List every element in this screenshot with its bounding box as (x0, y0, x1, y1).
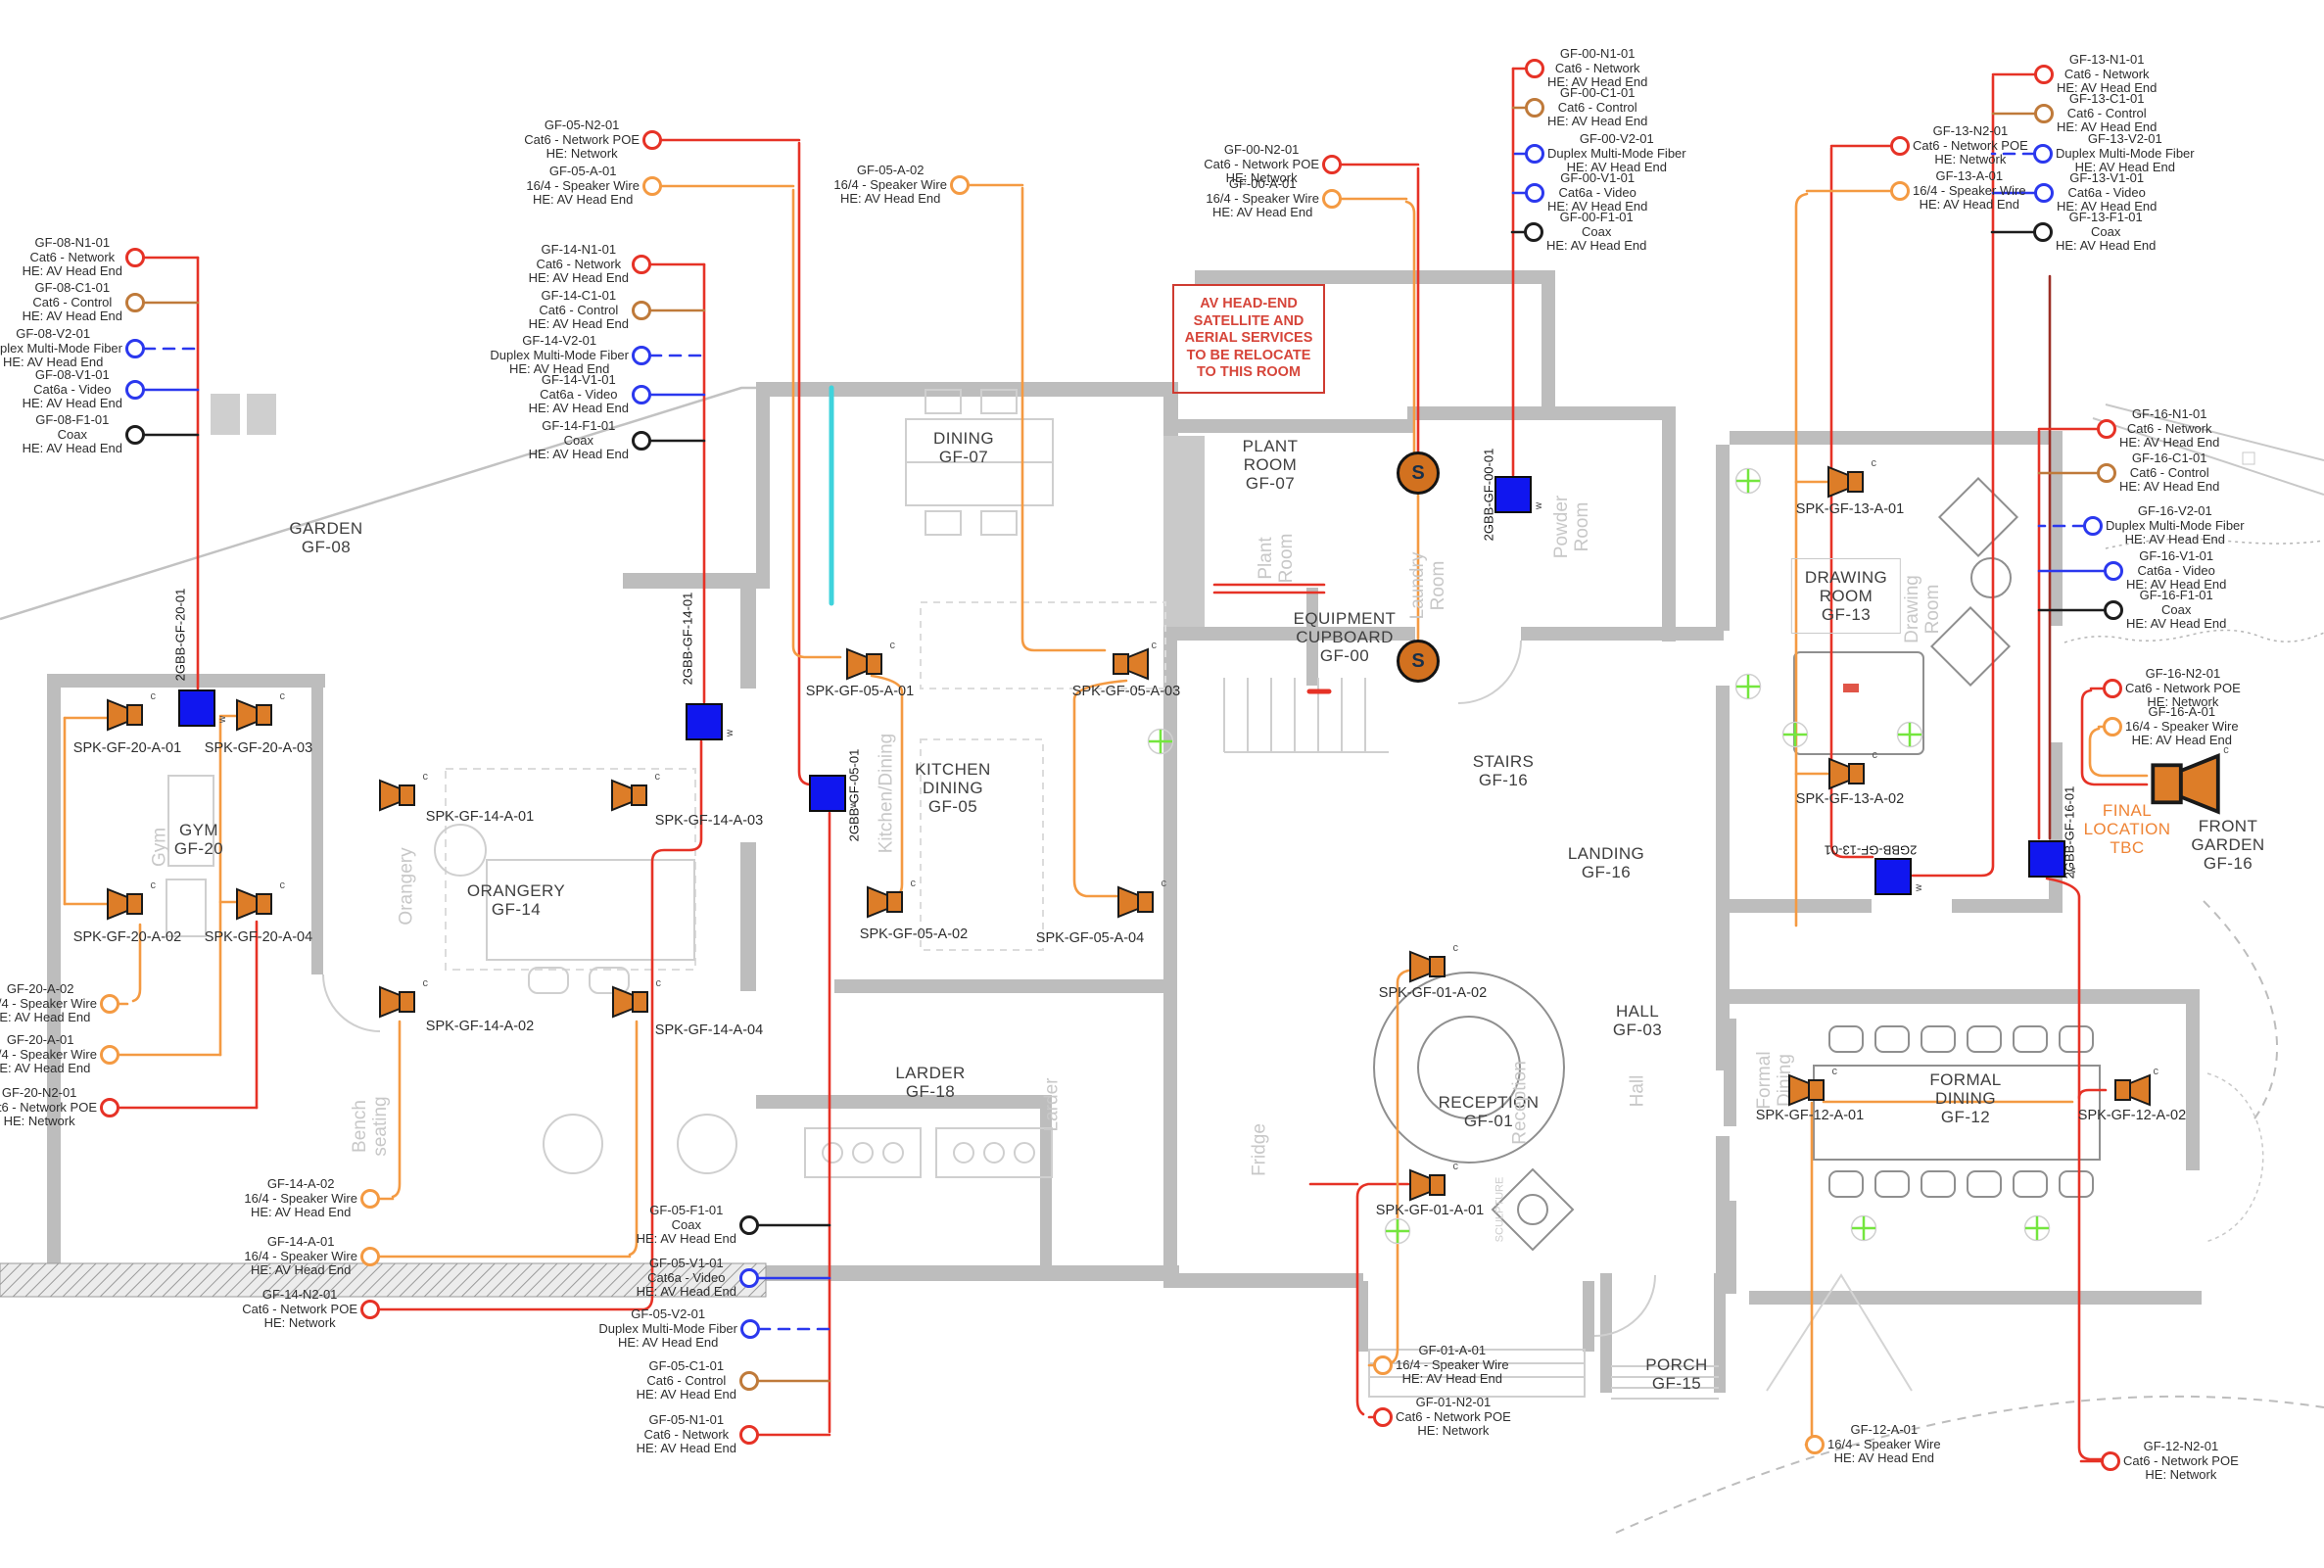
speaker-label: SPK-GF-20-A-01 (73, 740, 181, 756)
speaker-icon: c (378, 779, 421, 812)
room-label: PORCH GF-15 (1645, 1355, 1707, 1393)
speaker-label: SPK-GF-14-A-01 (426, 809, 534, 825)
callout-GF-14-V2-01: GF-14-V2-01 Duplex Multi-Mode Fiber HE: … (490, 334, 629, 377)
callout-GF-16-C1-01: GF-16-C1-01 Cat6 - Control HE: AV Head E… (2119, 451, 2219, 495)
speaker-label: SPK-GF-20-A-02 (73, 929, 181, 945)
speaker-label: SPK-GF-01-A-02 (1379, 985, 1487, 1001)
speaker-label: SPK-GF-14-A-03 (655, 813, 763, 829)
callout-GF-20-A-02: GF-20-A-02 16/4 - Speaker Wire HE: AV He… (0, 982, 97, 1025)
callout-GF-12-A-01: GF-12-A-01 16/4 - Speaker Wire HE: AV He… (1827, 1423, 1941, 1466)
callout-GF-16-N2-01: GF-16-N2-01 Cat6 - Network POE HE: Netwo… (2125, 667, 2241, 710)
callout-GF-00-N1-01: GF-00-N1-01 Cat6 - Network HE: AV Head E… (1547, 47, 1647, 90)
callout-GF-05-F1-01: GF-05-F1-01 Coax HE: AV Head End (637, 1204, 736, 1247)
callout-GF-05-V1-01: GF-05-V1-01 Cat6a - Video HE: AV Head En… (637, 1257, 736, 1300)
ceiling-marker-icon (1780, 720, 1810, 754)
callout-GF-05-A-01: GF-05-A-01 16/4 - Speaker Wire HE: AV He… (526, 165, 640, 208)
speaker-icon: c (1408, 950, 1451, 983)
callout-GF-13-V2-01: GF-13-V2-01 Duplex Multi-Mode Fiber HE: … (2056, 132, 2195, 175)
speaker-label: SPK-GF-20-A-03 (205, 740, 312, 756)
room-label: LARDER GF-18 (895, 1064, 965, 1101)
network-point-icon: w (2028, 840, 2065, 878)
callout-GF-00-F1-01: GF-00-F1-01 Coax HE: AV Head End (1546, 211, 1646, 254)
speaker-icon: c (106, 698, 149, 732)
speaker-label: SPK-GF-14-A-02 (426, 1019, 534, 1034)
speaker-c-mark: c (655, 771, 661, 783)
ceiling-marker-icon (1733, 466, 1763, 500)
callout-GF-16-A-01: GF-16-A-01 16/4 - Speaker Wire HE: AV He… (2125, 705, 2239, 748)
callout-GF-14-A-02: GF-14-A-02 16/4 - Speaker Wire HE: AV He… (244, 1177, 357, 1220)
arch-label: Drawing Room (1902, 575, 1943, 643)
speaker-icon: c (2109, 1073, 2152, 1107)
speaker-icon: c (1408, 1168, 1451, 1202)
network-point-icon: w (686, 703, 723, 740)
speaker-label: SPK-GF-05-A-01 (806, 684, 914, 699)
callout-GF-13-A-01: GF-13-A-01 16/4 - Speaker Wire HE: AV He… (1913, 169, 2026, 213)
speaker-label: SPK-GF-05-A-02 (860, 927, 968, 942)
room-label: DRAWING ROOM GF-13 (1791, 558, 1901, 634)
callout-GF-13-N1-01: GF-13-N1-01 Cat6 - Network HE: AV Head E… (2057, 53, 2157, 96)
ceiling-marker-icon (1146, 727, 1175, 761)
speaker-label: SPK-GF-05-A-03 (1072, 684, 1180, 699)
callout-GF-16-V2-01: GF-16-V2-01 Duplex Multi-Mode Fiber HE: … (2106, 504, 2245, 547)
speaker-c-mark: c (911, 878, 917, 889)
arch-label: Powder Room (1551, 496, 1592, 558)
arch-label: Bench seating (350, 1096, 391, 1156)
speaker-c-mark: c (1162, 878, 1167, 889)
room-label: PLANT ROOM GF-07 (1243, 437, 1299, 493)
speaker-c-mark: c (423, 977, 429, 989)
speaker-label: SPK-GF-12-A-01 (1756, 1108, 1864, 1123)
speaker-icon: c (1116, 885, 1160, 919)
speaker-icon: c (1787, 1073, 1830, 1107)
network-point-icon: w (809, 775, 846, 812)
speaker-icon: c (235, 698, 278, 732)
speaker-icon: c (235, 887, 278, 921)
ceiling-marker-icon (2022, 1213, 2052, 1248)
sounder-point-icon: S (1397, 640, 1440, 683)
ceiling-marker-icon (1733, 672, 1763, 706)
room-label: DINING GF-07 (933, 429, 994, 466)
speaker-icon: c (106, 887, 149, 921)
speaker-c-mark: c (280, 879, 286, 891)
square-w-mark: w (2067, 867, 2078, 874)
callout-GF-01-N2-01: GF-01-N2-01 Cat6 - Network POE HE: Netwo… (1396, 1396, 1511, 1439)
speaker-icon: c (866, 885, 909, 919)
callout-GF-13-F1-01: GF-13-F1-01 Coax HE: AV Head End (2056, 211, 2156, 254)
callout-connectors (0, 0, 2324, 1568)
callout-GF-05-V2-01: GF-05-V2-01 Duplex Multi-Mode Fiber HE: … (598, 1307, 737, 1351)
callout-GF-14-C1-01: GF-14-C1-01 Cat6 - Control HE: AV Head E… (529, 289, 629, 332)
speaker-c-mark: c (1453, 1161, 1459, 1172)
callout-GF-14-A-01: GF-14-A-01 16/4 - Speaker Wire HE: AV He… (244, 1235, 357, 1278)
room-label: LANDING GF-16 (1568, 844, 1644, 881)
callout-GF-16-V1-01: GF-16-V1-01 Cat6a - Video HE: AV Head En… (2126, 549, 2226, 593)
callout-GF-13-N2-01: GF-13-N2-01 Cat6 - Network POE HE: Netwo… (1913, 124, 2028, 167)
network-point-icon: w (1494, 476, 1532, 513)
speaker-icon: c (1107, 647, 1150, 681)
callout-GF-08-V2-01: GF-08-V2-01 Duplex Multi-Mode Fiber HE: … (0, 327, 122, 370)
speaker-icon: c (2140, 752, 2222, 816)
room-label: GARDEN GF-08 (289, 519, 362, 556)
ceiling-marker-icon (1895, 720, 1924, 754)
equipment-label: 2GBB-GF-20-01 (173, 589, 188, 682)
arch-label: Laundry Room (1407, 552, 1448, 620)
equipment-label: 2GBB-GF-14-01 (681, 593, 695, 686)
room-label: STAIRS GF-16 (1473, 752, 1535, 789)
speaker-c-mark: c (2223, 744, 2229, 756)
room-label: GYM GF-20 (174, 821, 223, 858)
callout-GF-14-N1-01: GF-14-N1-01 Cat6 - Network HE: AV Head E… (529, 243, 629, 286)
speaker-label: SPK-GF-13-A-02 (1796, 791, 1904, 807)
callout-GF-05-N1-01: GF-05-N1-01 Cat6 - Network HE: AV Head E… (637, 1413, 736, 1456)
arch-label: Hall (1628, 1075, 1648, 1108)
speaker-icon: c (610, 779, 653, 812)
room-label: ORANGERY GF-14 (467, 881, 565, 919)
speaker-c-mark: c (280, 690, 286, 702)
callout-GF-13-V1-01: GF-13-V1-01 Cat6a - Video HE: AV Head En… (2057, 171, 2157, 214)
speaker-c-mark: c (151, 879, 157, 891)
square-w-mark: w (848, 801, 859, 808)
speaker-icon: c (1826, 465, 1870, 499)
callout-GF-00-C1-01: GF-00-C1-01 Cat6 - Control HE: AV Head E… (1547, 86, 1647, 129)
callout-GF-16-F1-01: GF-16-F1-01 Coax HE: AV Head End (2126, 589, 2226, 632)
arch-label: Plant Room (1256, 534, 1297, 584)
callout-GF-14-N2-01: GF-14-N2-01 Cat6 - Network POE HE: Netwo… (242, 1288, 357, 1331)
callout-GF-08-N1-01: GF-08-N1-01 Cat6 - Network HE: AV Head E… (23, 236, 122, 279)
speaker-c-mark: c (1832, 1066, 1838, 1077)
equipment-label: 2GBB-GF-05-01 (847, 749, 862, 842)
callout-GF-08-V1-01: GF-08-V1-01 Cat6a - Video HE: AV Head En… (23, 368, 122, 411)
speaker-c-mark: c (656, 977, 662, 989)
room-label: KITCHEN DINING GF-05 (915, 760, 990, 816)
speaker-icon: c (378, 985, 421, 1019)
callout-GF-00-A-01: GF-00-A-01 16/4 - Speaker Wire HE: AV He… (1206, 177, 1319, 220)
speaker-label: SPK-GF-12-A-02 (2078, 1108, 2186, 1123)
equipment-label: 2GBB-GF-13-01 (1825, 843, 1918, 858)
room-label: FRONT GARDEN GF-16 (2191, 817, 2264, 873)
square-w-mark: w (725, 730, 735, 736)
speaker-c-mark: c (151, 690, 157, 702)
relocation-note: AV HEAD-END SATELLITE AND AERIAL SERVICE… (1172, 284, 1325, 394)
room-label: HALL GF-03 (1613, 1002, 1662, 1039)
callout-GF-12-N2-01: GF-12-N2-01 Cat6 - Network POE HE: Netwo… (2123, 1440, 2239, 1483)
network-point-icon: w (178, 689, 215, 727)
room-label: FORMAL DINING GF-12 (1929, 1070, 2001, 1126)
square-w-mark: w (1534, 502, 1544, 509)
callout-GF-08-F1-01: GF-08-F1-01 Coax HE: AV Head End (23, 413, 122, 456)
speaker-c-mark: c (1873, 749, 1878, 761)
callout-GF-20-N2-01: GF-20-N2-01 Cat6 - Network POE HE: Netwo… (0, 1086, 97, 1129)
square-w-mark: w (1914, 884, 1924, 891)
floorplan-canvas: AV HEAD-END SATELLITE AND AERIAL SERVICE… (0, 0, 2324, 1568)
speaker-label: SPK-GF-13-A-01 (1796, 501, 1904, 517)
speaker-c-mark: c (2154, 1066, 2159, 1077)
callout-GF-14-V1-01: GF-14-V1-01 Cat6a - Video HE: AV Head En… (529, 373, 629, 416)
callout-GF-05-C1-01: GF-05-C1-01 Cat6 - Control HE: AV Head E… (637, 1359, 736, 1402)
speaker-c-mark: c (1152, 640, 1158, 651)
speaker-label: SPK-GF-20-A-04 (205, 929, 312, 945)
callout-GF-14-F1-01: GF-14-F1-01 Coax HE: AV Head End (529, 419, 629, 462)
sounder-point-icon: S (1397, 451, 1440, 495)
room-label: EQUIPMENT CUPBOARD GF-00 (1294, 609, 1397, 665)
arch-label: SCULPTURE (1491, 1177, 1511, 1243)
speaker-label: SPK-GF-05-A-04 (1036, 930, 1144, 946)
callout-GF-08-C1-01: GF-08-C1-01 Cat6 - Control HE: AV Head E… (23, 281, 122, 324)
callout-GF-16-N1-01: GF-16-N1-01 Cat6 - Network HE: AV Head E… (2119, 407, 2219, 451)
network-point-icon: w (1874, 858, 1912, 895)
speaker-label: SPK-GF-14-A-04 (655, 1022, 763, 1038)
speaker-c-mark: c (1872, 457, 1877, 469)
speaker-icon: c (611, 985, 654, 1019)
speaker-c-mark: c (423, 771, 429, 783)
arch-label: Gym (150, 828, 170, 867)
speaker-icon: c (845, 647, 888, 681)
arch-label: Fridge (1250, 1123, 1270, 1176)
arch-label: Larder (1042, 1078, 1063, 1132)
callout-GF-01-A-01: GF-01-A-01 16/4 - Speaker Wire HE: AV He… (1396, 1344, 1509, 1387)
arch-label: Kitchen/Dining (877, 734, 897, 854)
arch-label: Orangery (397, 847, 417, 925)
callout-GF-13-C1-01: GF-13-C1-01 Cat6 - Control HE: AV Head E… (2057, 92, 2157, 135)
speaker-c-mark: c (890, 640, 896, 651)
arch-label: Reception (1510, 1061, 1531, 1145)
speaker-c-mark: c (1453, 942, 1459, 954)
callout-GF-05-N2-01: GF-05-N2-01 Cat6 - Network POE HE: Netwo… (524, 119, 640, 162)
ceiling-marker-icon (1849, 1213, 1878, 1248)
callout-GF-05-A-02: GF-05-A-02 16/4 - Speaker Wire HE: AV He… (833, 164, 947, 207)
speaker-icon: c (1827, 757, 1871, 790)
ceiling-marker-icon (1383, 1216, 1412, 1251)
callout-GF-00-V1-01: GF-00-V1-01 Cat6a - Video HE: AV Head En… (1547, 171, 1647, 214)
callout-GF-20-A-01: GF-20-A-01 16/4 - Speaker Wire HE: AV He… (0, 1033, 97, 1076)
square-w-mark: w (217, 716, 228, 723)
callout-GF-00-V2-01: GF-00-V2-01 Duplex Multi-Mode Fiber HE: … (1547, 132, 1686, 175)
